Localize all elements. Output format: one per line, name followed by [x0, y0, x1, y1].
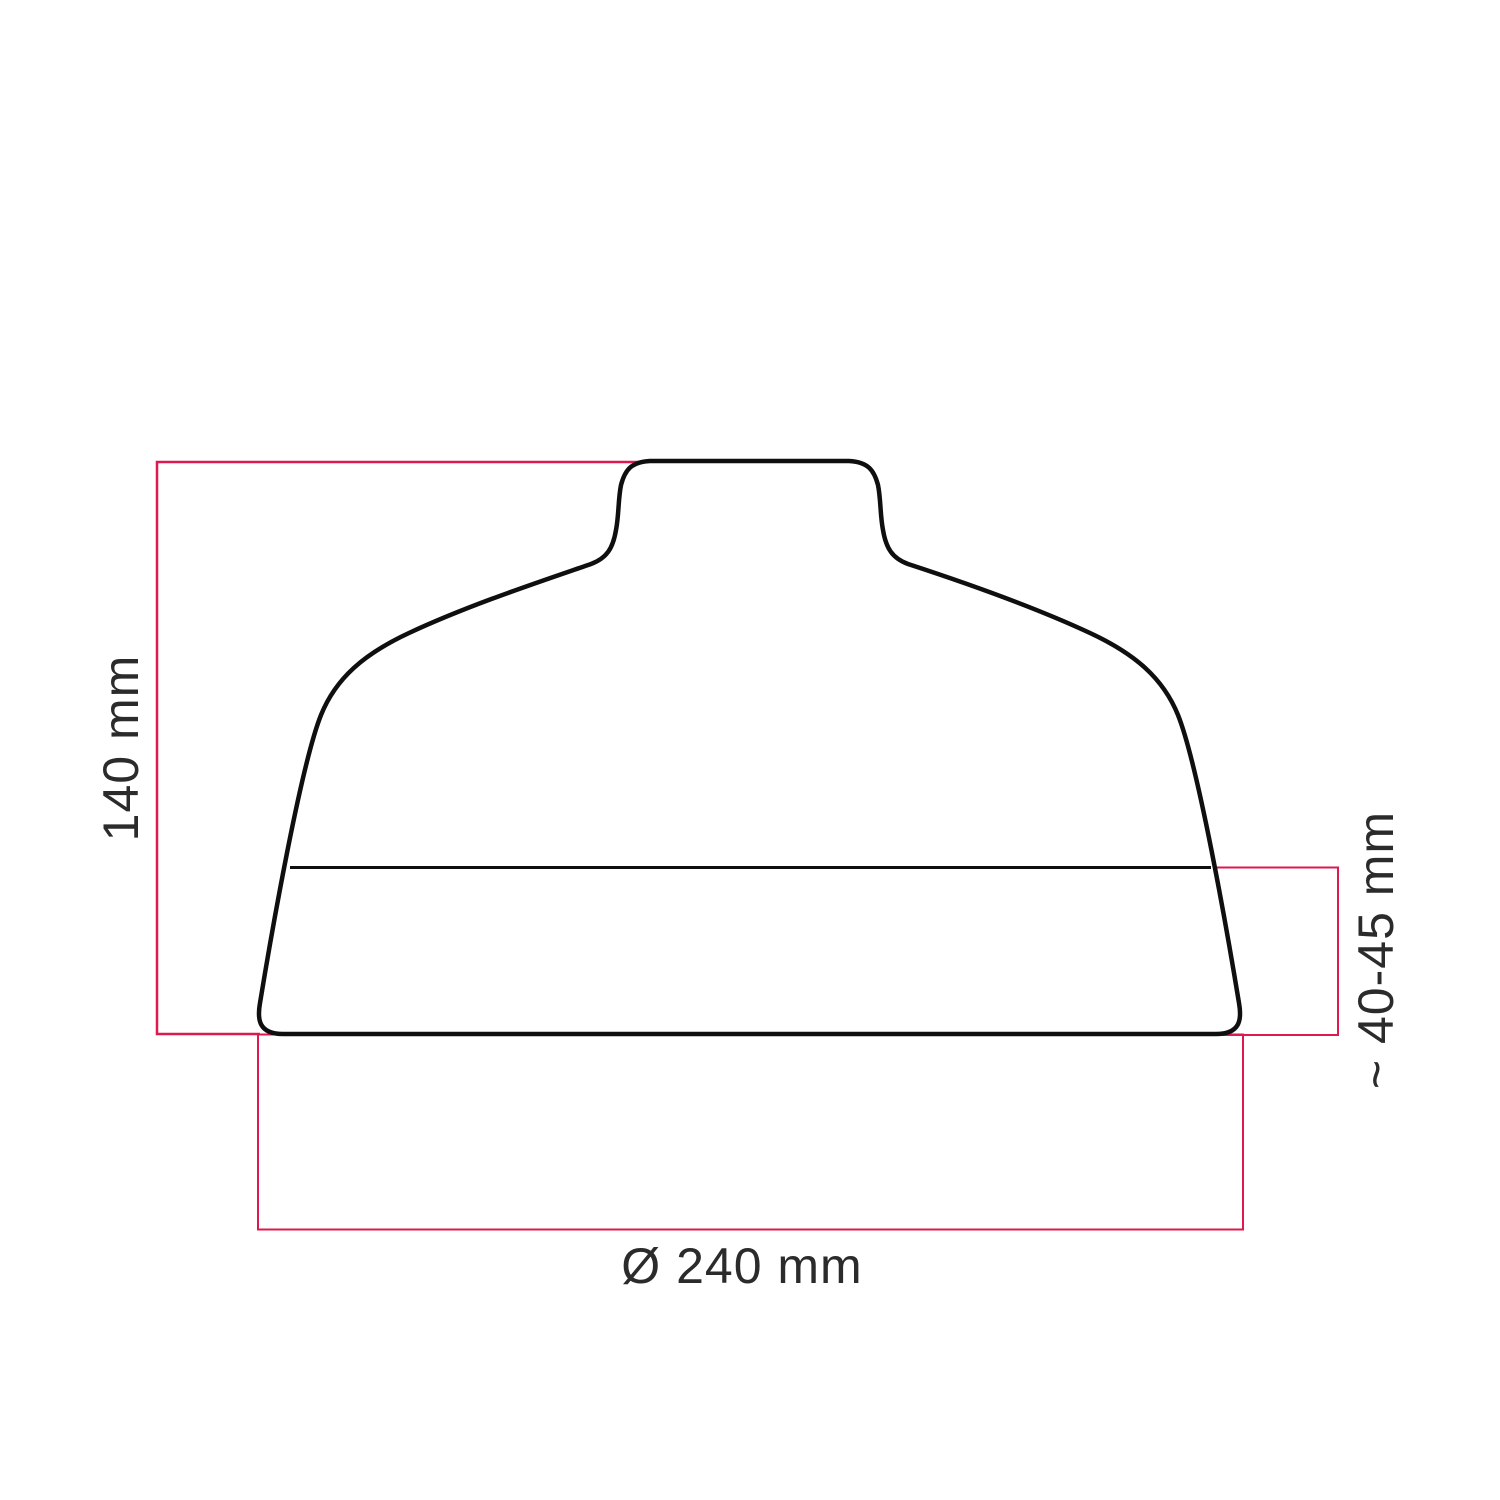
- diameter-dimension-line: [258, 1035, 1243, 1230]
- rim-height-dimension-label: ~ 40-45 mm: [1347, 811, 1405, 1089]
- height-dimension-label: 140 mm: [92, 655, 150, 842]
- lampshade-outline-path: [259, 461, 1240, 1034]
- lampshade-dimension-diagram: 140 mm ~ 40-45 mm Ø 240 mm: [0, 0, 1500, 1500]
- diameter-dimension-label: Ø 240 mm: [621, 1237, 862, 1295]
